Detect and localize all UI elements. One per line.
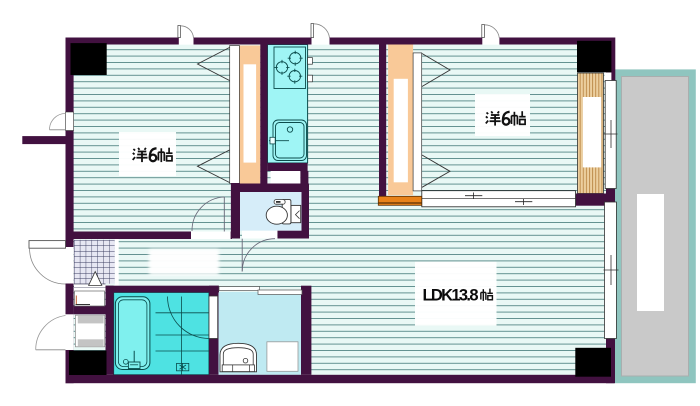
svg-text:LDK13.8: LDK13.8 xyxy=(423,286,479,304)
